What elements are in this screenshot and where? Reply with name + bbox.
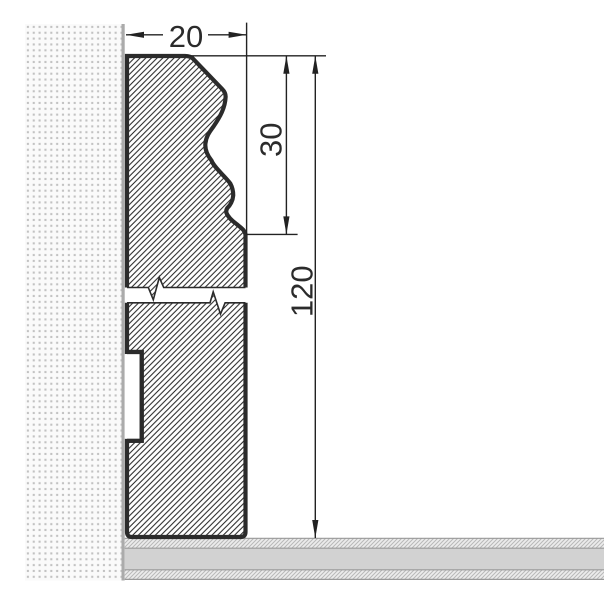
svg-text:30: 30 bbox=[254, 123, 289, 157]
svg-text:120: 120 bbox=[285, 265, 320, 317]
svg-text:20: 20 bbox=[169, 19, 203, 54]
